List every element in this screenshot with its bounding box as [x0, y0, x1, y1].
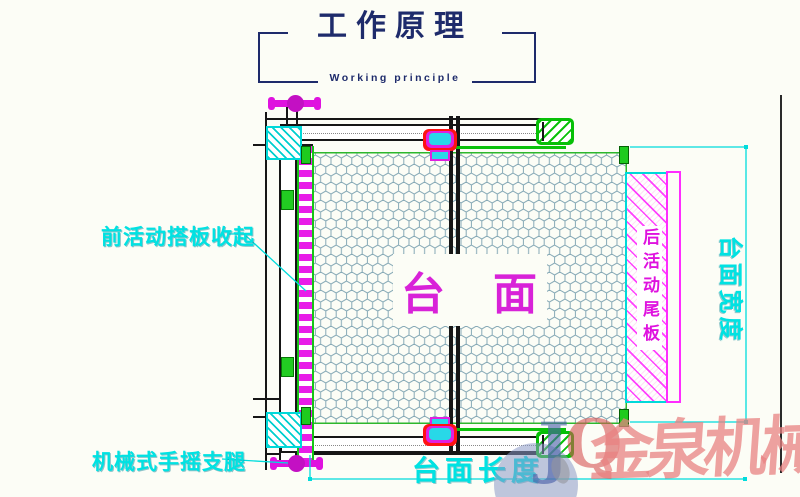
slide-bar-top — [446, 146, 566, 149]
leg-callout: 机械式手摇支腿 — [92, 446, 246, 476]
support-leg-bottom — [266, 412, 302, 448]
hinge-pin — [301, 407, 311, 425]
table-surface-label: 台 面 — [393, 254, 547, 326]
page-title: 工作原理 — [288, 6, 502, 48]
crank-knob — [270, 457, 277, 470]
rear-tail-board: 后活动尾板 — [625, 172, 668, 403]
hinge-pin — [301, 146, 311, 164]
drawing-canvas: 工作原理 Working principle — [0, 0, 800, 497]
flap-latch-top — [281, 190, 294, 210]
top-beam — [280, 124, 544, 141]
jq-logo-blob — [548, 454, 573, 486]
crank-knob — [314, 97, 321, 110]
support-leg-top — [266, 126, 302, 160]
roller-clamp-bottom — [423, 424, 457, 446]
rear-tail-board-label: 后活动尾板 — [637, 226, 662, 350]
top-rail-line — [266, 118, 544, 120]
crank-knob — [268, 97, 275, 110]
hinge-pin — [619, 146, 629, 164]
slide-bar-bottom — [446, 428, 566, 431]
crank-knob — [316, 457, 323, 470]
roller-clamp-top — [423, 129, 457, 151]
top-beam-end-bracket — [536, 118, 574, 145]
rear-board-edge — [666, 171, 681, 403]
page-subtitle: Working principle — [318, 69, 472, 87]
flap-latch-bottom — [281, 357, 294, 377]
crank-hub — [288, 455, 305, 472]
length-dimension-label: 台面长度 — [412, 449, 544, 489]
hinge-pin — [619, 409, 629, 427]
width-dimension-label: 台面宽度 — [716, 235, 751, 345]
crank-hub — [287, 95, 304, 112]
sheet-edge-line — [780, 95, 782, 473]
clamp-tab-top — [430, 150, 450, 161]
front-flap-callout: 前活动搭板收起 — [101, 221, 255, 251]
